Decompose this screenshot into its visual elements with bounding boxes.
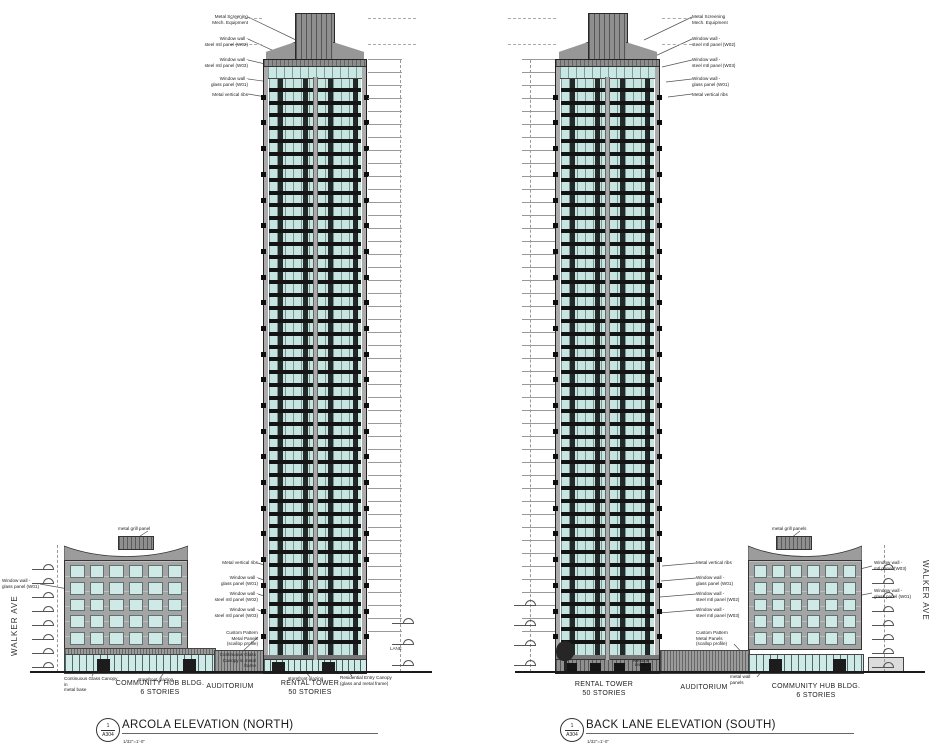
window [109, 582, 124, 595]
mech-penthouse [295, 13, 335, 60]
level-flag [872, 578, 894, 584]
rental-tower-north [263, 13, 367, 672]
drawing-title-north: ARCOLA ELEVATION (NORTH) [122, 719, 378, 734]
dimension-ticks [368, 59, 402, 644]
callout: Metal Screening Mech. Equipment [188, 14, 248, 25]
level-flag [32, 620, 54, 626]
level-flag [872, 620, 894, 626]
window [70, 615, 85, 628]
window [168, 615, 183, 628]
window [843, 599, 856, 612]
drawing-scale: 1/32"=1'-0" [587, 739, 609, 744]
window [772, 582, 785, 595]
window [109, 599, 124, 612]
callout: Window wall - glass panel (W01) [696, 575, 756, 586]
tower-shaft [263, 59, 367, 674]
callout: Metal vertical ribs [188, 92, 248, 98]
window [790, 615, 803, 628]
callout: Metal vertical ribs [696, 560, 756, 566]
level-flag [872, 634, 894, 640]
roof-wedge [559, 42, 588, 60]
window [825, 565, 838, 578]
level-flag [32, 662, 54, 668]
callout: Window wall - steel mtl panel (W02) [692, 36, 752, 47]
building-label-auditorium: AUDITORIUM [664, 683, 744, 692]
window [843, 632, 856, 645]
window [168, 565, 183, 578]
callout: Window wall - mtl panel (W03) [874, 560, 930, 571]
lane-line [400, 60, 401, 672]
building-label-auditorium: AUDITORIUM [190, 682, 270, 691]
building-label-hub: COMMUNITY HUB BLDG. 6 STORIES [756, 682, 876, 700]
window [825, 599, 838, 612]
window [70, 565, 85, 578]
window [825, 632, 838, 645]
window [807, 632, 820, 645]
window [807, 565, 820, 578]
level-flag [872, 606, 894, 612]
center-mullion [605, 77, 610, 660]
window [70, 599, 85, 612]
window [109, 632, 124, 645]
window [825, 582, 838, 595]
callout: metal grill panels [772, 526, 828, 532]
window [90, 565, 105, 578]
center-mullion [313, 77, 318, 660]
window [772, 565, 785, 578]
level-flag [872, 662, 894, 668]
window [70, 582, 85, 595]
window [70, 632, 85, 645]
callout: Custom Pattern Metal Panels (scallop pro… [198, 630, 258, 647]
level-flag [32, 606, 54, 612]
callout: Window wall - glass panel (W01) [2, 578, 44, 589]
callout: Window wall - steel mtl panel (W03) [188, 57, 248, 68]
parkade-entry-label: PARKADE ENTRY [628, 660, 654, 668]
window [129, 599, 144, 612]
window [148, 582, 163, 595]
hub-window-grid [70, 565, 182, 645]
building-label-tower: RENTAL TOWER 50 STORIES [262, 679, 358, 697]
callout: Custom Pattern Metal Panels (scallop pro… [696, 630, 756, 647]
level-flag [514, 620, 536, 626]
callout: Window wall - steel mtl panel (W02) [188, 36, 248, 47]
window [843, 615, 856, 628]
hub-facade [64, 560, 188, 650]
window [90, 599, 105, 612]
window [129, 565, 144, 578]
window [168, 632, 183, 645]
tower-shaft: PARKADE ENTRY [555, 59, 660, 674]
detail-bubble: 1 A304 [560, 718, 584, 742]
level-flag [392, 618, 414, 624]
level-flag [32, 634, 54, 640]
level-datum-flags [392, 618, 414, 666]
window [148, 599, 163, 612]
window [168, 582, 183, 595]
roof-wedge [333, 42, 364, 60]
window [90, 632, 105, 645]
window [772, 632, 785, 645]
window [790, 582, 803, 595]
roof-band [556, 60, 659, 67]
window [148, 632, 163, 645]
property-line [57, 545, 58, 672]
window [772, 599, 785, 612]
tree [556, 641, 574, 671]
drawing-scale: 1/32"=1'-0" [123, 739, 145, 744]
level-flag [514, 660, 536, 666]
window [90, 615, 105, 628]
roof-wedge [266, 42, 295, 60]
callout: Metal vertical ribs [198, 560, 258, 566]
window [109, 615, 124, 628]
ground-line [30, 671, 432, 673]
window [790, 632, 803, 645]
window [129, 582, 144, 595]
level-flag [514, 600, 536, 606]
level-datum-flags [514, 600, 536, 666]
window [772, 615, 785, 628]
callout: Continuous Glass Canopy in metal frame [196, 652, 256, 669]
callout: Window wall - steel mtl panel (W02) [696, 591, 756, 602]
window [168, 599, 183, 612]
level-flag [392, 660, 414, 666]
window [109, 565, 124, 578]
callout: Window wall - steel mtl panel (W03) [692, 57, 752, 68]
window [807, 582, 820, 595]
mech-penthouse [588, 13, 628, 60]
callout: Window wall - steel mtl panel (W02) [198, 591, 258, 602]
window [129, 632, 144, 645]
drawing-title-south: BACK LANE ELEVATION (SOUTH) [586, 719, 854, 734]
rental-tower-south: PARKADE ENTRY [555, 13, 660, 672]
callout: Metal Screening Mech. Equipment [692, 14, 752, 25]
window [807, 615, 820, 628]
callout: Metal vertical ribs [692, 92, 752, 98]
window [129, 615, 144, 628]
window [843, 565, 856, 578]
window [807, 599, 820, 612]
ground-line [515, 671, 925, 673]
level-flag [32, 592, 54, 598]
lane-line [530, 60, 531, 672]
level-flag [514, 640, 536, 646]
roof-wedge [626, 42, 657, 60]
level-flag [872, 648, 894, 654]
window [90, 582, 105, 595]
callout: Window wall - steel mtl panel (W03) [696, 607, 756, 618]
detail-bubble: 1 A304 [96, 718, 120, 742]
callout: metal grill panel [118, 526, 174, 532]
window [825, 615, 838, 628]
window [148, 565, 163, 578]
dimension-ticks [522, 59, 556, 644]
hub-facade [748, 560, 862, 650]
architectural-sheet: WALKER AVE [0, 0, 938, 754]
level-flag [32, 564, 54, 570]
hub-window-grid [754, 565, 856, 645]
street-label-walker-ave-north: WALKER AVE [10, 595, 19, 656]
level-datum-flags [872, 564, 894, 668]
window [790, 599, 803, 612]
window [148, 615, 163, 628]
callout: Window wall - glass panel (W01) [198, 575, 258, 586]
callout: Window wall - glass panel (W01) [188, 76, 248, 87]
callout: Window wall - glass panel (W01) [874, 588, 930, 599]
level-flag [392, 639, 414, 645]
level-flag [32, 648, 54, 654]
window [843, 582, 856, 595]
callout: Window wall - glass panel (W01) [692, 76, 752, 87]
window [790, 565, 803, 578]
building-label-tower: RENTAL TOWER 50 STORIES [556, 680, 652, 698]
community-hub-building-south [748, 534, 862, 672]
roof-band [264, 60, 366, 67]
callout: Window wall - steel mtl panel (W03) [198, 607, 258, 618]
